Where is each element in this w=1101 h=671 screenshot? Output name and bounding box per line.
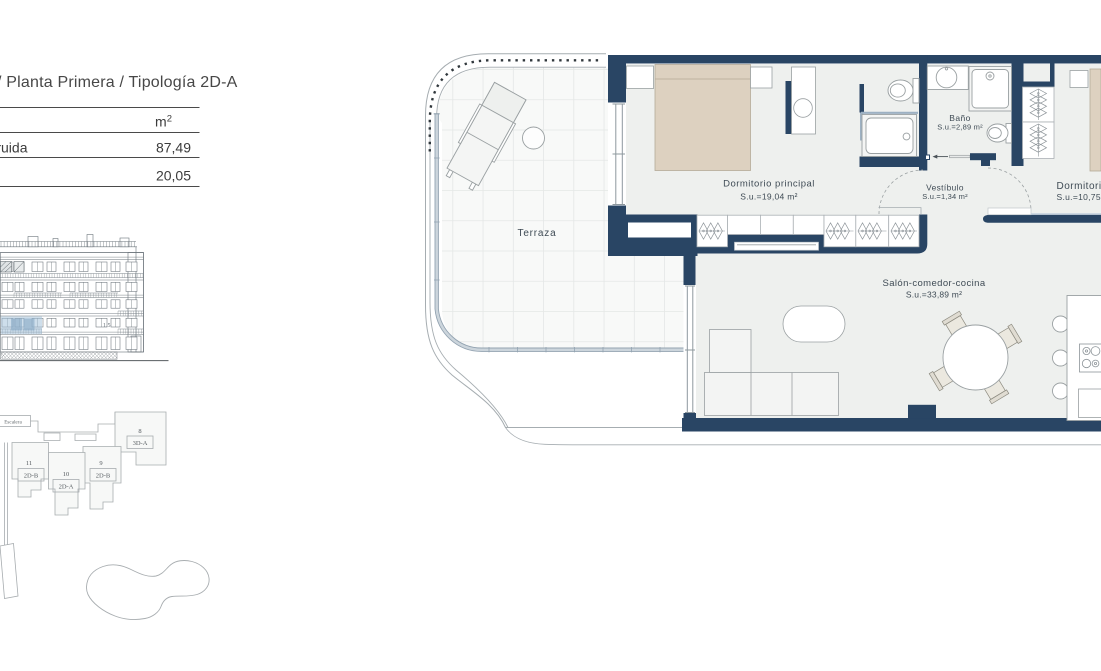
svg-text:11: 11: [26, 460, 32, 467]
svg-text:2D-B: 2D-B: [96, 473, 111, 480]
svg-text:20,05: 20,05: [156, 168, 191, 184]
svg-text:Salón-comedor-cocina: Salón-comedor-cocina: [882, 278, 985, 289]
svg-text:Terraza: Terraza: [518, 228, 557, 239]
svg-text:S.u.=2,89 m²: S.u.=2,89 m²: [937, 123, 983, 132]
svg-text:10: 10: [63, 471, 70, 478]
svg-text:Superficie construida: Superficie construida: [0, 140, 28, 156]
svg-text:Dormitorio: Dormitorio: [1057, 181, 1101, 192]
svg-text:8: 8: [138, 428, 141, 435]
svg-text:2D-B: 2D-B: [24, 473, 39, 480]
svg-text:2D-A: 2D-A: [59, 484, 74, 491]
svg-text:S.u.=10,75 m²: S.u.=10,75 m²: [1057, 192, 1101, 202]
svg-text:S.u.=1,34 m²: S.u.=1,34 m²: [922, 192, 968, 201]
svg-text:87,49: 87,49: [156, 140, 191, 156]
svg-text:S.u.=33,89 m²: S.u.=33,89 m²: [906, 290, 962, 300]
svg-text:Escalera: Escalera: [4, 420, 22, 426]
svg-text:3D-A: 3D-A: [133, 440, 148, 447]
svg-text:1.5: 1.5: [103, 323, 111, 329]
svg-text:S.u.=19,04 m²: S.u.=19,04 m²: [740, 192, 798, 202]
svg-text:Vestíbulo: Vestíbulo: [926, 183, 964, 193]
svg-text:Dormitorio principal: Dormitorio principal: [723, 179, 815, 190]
svg-text:Baño: Baño: [949, 113, 970, 123]
svg-text:9: 9: [99, 460, 102, 467]
svg-text:/ Planta Primera / Tipología 2: / Planta Primera / Tipología 2D-A: [0, 74, 238, 91]
